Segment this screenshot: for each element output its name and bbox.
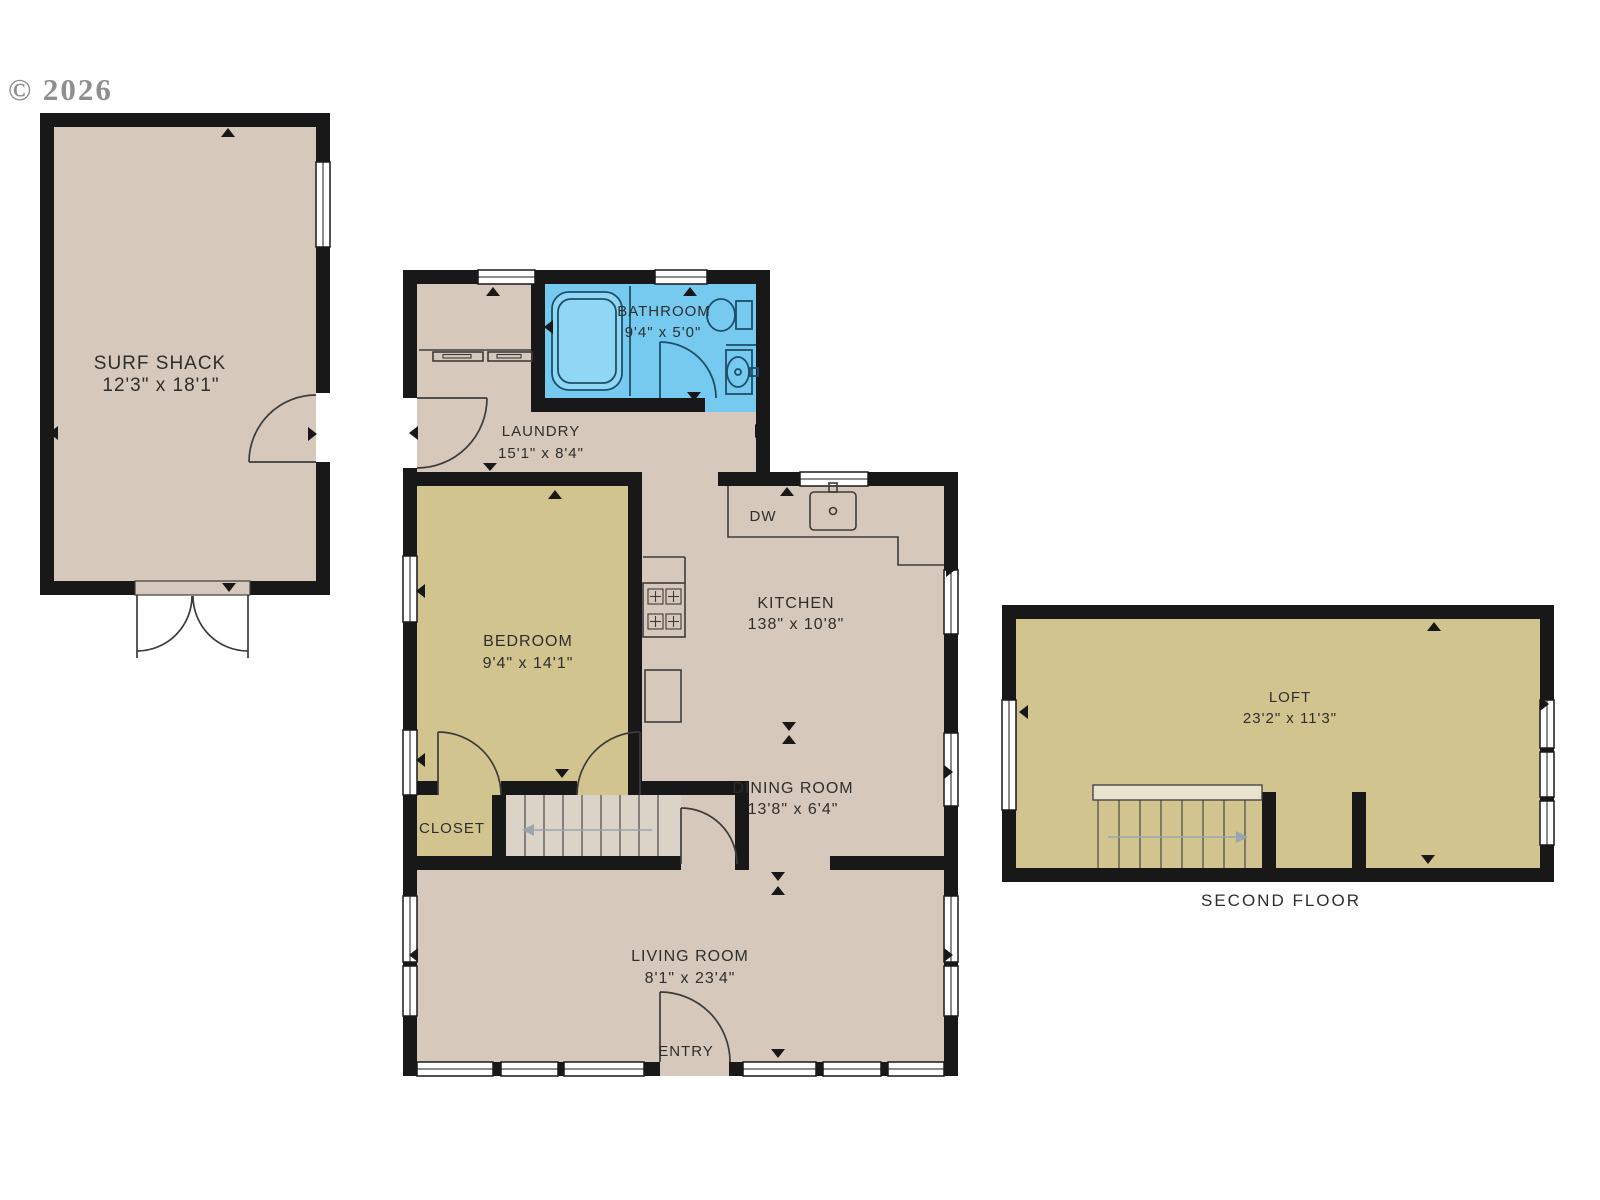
window <box>800 472 868 486</box>
bathroom-label: BATHROOM <box>617 303 711 320</box>
second-floor-caption: SECOND FLOOR <box>1201 891 1361 910</box>
wall <box>1002 605 1554 619</box>
loft-dims: 23'2" x 11'3" <box>1243 710 1337 727</box>
laundry-label: LAUNDRY <box>502 423 580 440</box>
wall <box>501 781 577 795</box>
dishwasher-label: DW <box>750 508 777 525</box>
dining-room-label: DINING ROOM <box>732 780 853 797</box>
window <box>501 1062 558 1076</box>
kitchen-label: KITCHEN <box>757 595 834 612</box>
window <box>823 1062 881 1076</box>
kitchen-dims: 138" x 10'8" <box>748 616 845 633</box>
loft-floor <box>1016 619 1540 868</box>
window <box>1540 801 1554 845</box>
bedroom-door-threshold <box>438 781 501 795</box>
window <box>403 556 417 622</box>
wall <box>830 856 944 870</box>
wall <box>40 113 330 127</box>
wall <box>531 284 545 412</box>
living-room-label: LIVING ROOM <box>631 948 749 965</box>
wall <box>756 270 770 486</box>
bathtub <box>552 292 622 390</box>
laundry-dims: 15'1" x 8'4" <box>498 445 584 462</box>
window <box>403 966 417 1016</box>
window <box>888 1062 944 1076</box>
loft-label: LOFT <box>1269 689 1311 706</box>
window <box>743 1062 816 1076</box>
bathroom-dims: 9'4" x 5'0" <box>625 324 702 341</box>
floor-plan-page: © 2026 <box>0 0 1600 1200</box>
wall <box>403 270 770 284</box>
window <box>1540 752 1554 797</box>
wall <box>250 581 330 595</box>
window <box>655 270 707 284</box>
living-room-dims: 8'1" x 23'4" <box>645 970 736 987</box>
surf-shack-building: SURF SHACK 12'3" x 18'1" <box>40 113 330 658</box>
french-doors <box>135 581 250 658</box>
floor-plan-drawing: SURF SHACK 12'3" x 18'1" <box>0 0 1600 1200</box>
wall <box>492 795 506 856</box>
window <box>417 1062 493 1076</box>
bedroom-label: BEDROOM <box>483 633 573 650</box>
wall <box>403 856 681 870</box>
wall <box>531 398 705 412</box>
main-floor-building: BATHROOM 9'4" x 5'0" LAUNDRY 15'1" x 8'4… <box>403 270 958 1076</box>
wall <box>1352 792 1366 868</box>
surf-shack-label: SURF SHACK <box>94 353 226 374</box>
wall <box>1002 868 1554 882</box>
wall <box>403 472 642 486</box>
bedroom-dims: 9'4" x 14'1" <box>483 655 574 672</box>
wall <box>40 113 54 595</box>
wall <box>1262 792 1276 868</box>
window <box>944 966 958 1016</box>
entry-label: ENTRY <box>658 1043 714 1060</box>
window <box>1002 700 1016 810</box>
closet-label: CLOSET <box>419 820 485 837</box>
window <box>478 270 535 284</box>
surf-shack-dims: 12'3" x 18'1" <box>102 375 219 396</box>
window <box>403 730 417 795</box>
wall <box>40 581 135 595</box>
copyright-watermark: © 2026 <box>8 72 113 108</box>
window <box>944 570 958 634</box>
window <box>564 1062 644 1076</box>
second-floor-building: LOFT 23'2" x 11'3" SECOND FLOOR <box>1002 605 1554 910</box>
window <box>316 162 330 247</box>
dining-room-dims: 13'8" x 6'4" <box>748 801 839 818</box>
